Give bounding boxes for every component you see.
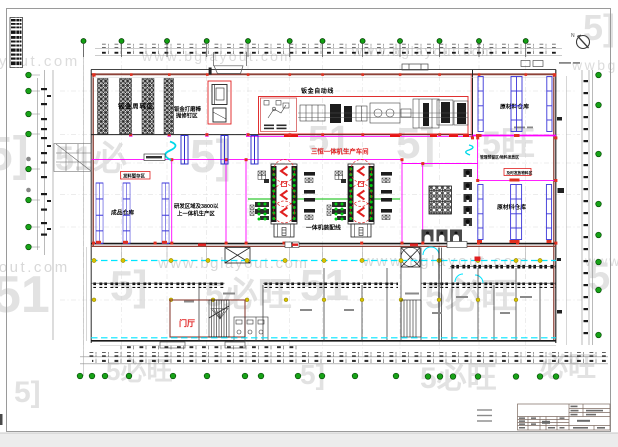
svg-text:门厅: 门厅: [179, 318, 195, 328]
svg-text:钣金打磨棒: 钣金打磨棒: [174, 105, 202, 113]
svg-text:管理预留区/物料发放区: 管理预留区/物料发放区: [480, 155, 519, 160]
svg-text:三恒一体机生产车间: 三恒一体机生产车间: [311, 147, 369, 156]
svg-text:成品仓库: 成品仓库: [111, 209, 134, 217]
svg-text:抛修钉区: 抛修钉区: [176, 112, 198, 120]
svg-text:钣金自动线: 钣金自动线: [301, 87, 334, 95]
svg-text:及时发放物料区: 及时发放物料区: [507, 170, 533, 175]
svg-text:钣金周转区: 钣金周转区: [118, 103, 154, 111]
svg-text:5]: 5]: [14, 376, 41, 409]
svg-text:5必旺: 5必旺: [420, 362, 497, 395]
svg-text:51: 51: [0, 266, 50, 324]
svg-text:一体机装配线: 一体机装配线: [306, 224, 341, 232]
svg-text:发料暂存区: 发料暂存区: [122, 173, 146, 180]
svg-text:研发区域及3800以: 研发区域及3800以: [174, 202, 219, 210]
svg-text:N: N: [571, 33, 575, 39]
svg-text:www.bglayout.com: www.bglayout.com: [157, 255, 309, 272]
svg-text:上一体机生产区: 上一体机生产区: [177, 210, 215, 218]
svg-text:原材料仓库: 原材料仓库: [500, 103, 529, 111]
svg-text:5]: 5]: [0, 128, 29, 181]
